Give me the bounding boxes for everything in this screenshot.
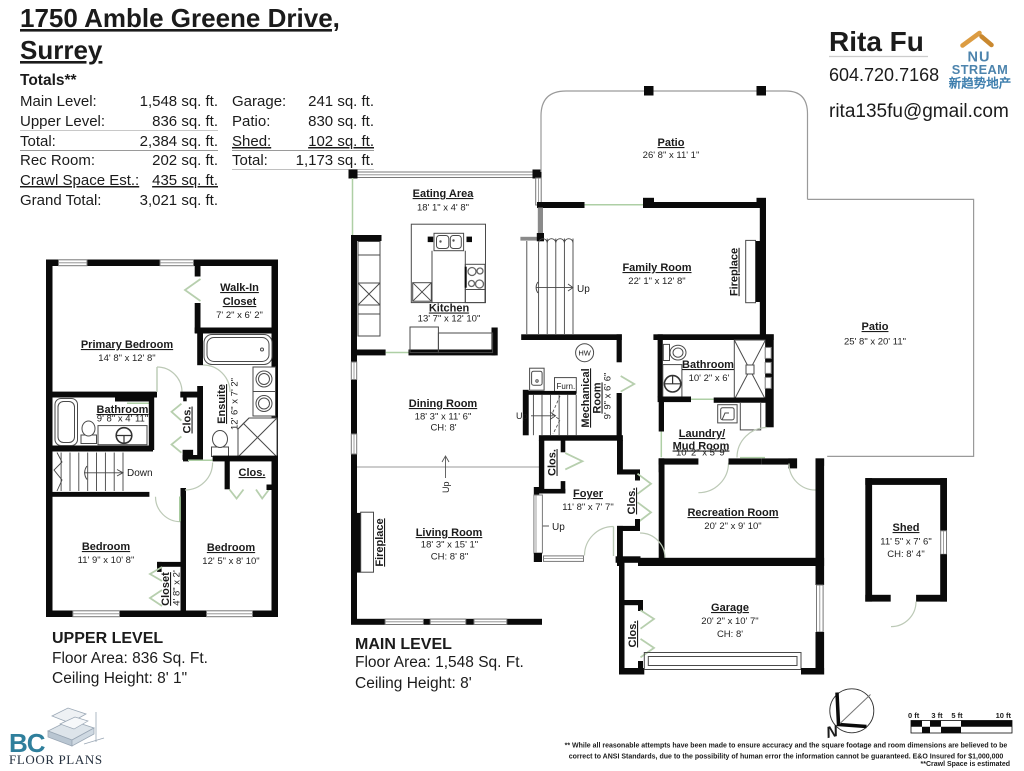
svg-text:Eating Area: Eating Area — [413, 188, 475, 200]
svg-text:Upper Level:: Upper Level: — [20, 113, 105, 130]
svg-text:correct to ANSI Standards, due: correct to ANSI Standards, due to the po… — [569, 754, 1004, 761]
svg-text:9' 9" x 6' 6": 9' 9" x 6' 6" — [603, 373, 614, 420]
svg-text:13' 7" x 12' 10": 13' 7" x 12' 10" — [418, 314, 481, 325]
svg-text:4' 8" x 2': 4' 8" x 2' — [172, 570, 183, 606]
svg-text:20' 2" x 10' 7": 20' 2" x 10' 7" — [701, 616, 758, 627]
svg-text:1,173 sq. ft.: 1,173 sq. ft. — [296, 152, 374, 169]
svg-text:3 ft: 3 ft — [931, 711, 943, 720]
svg-text:Patio:: Patio: — [232, 113, 270, 130]
svg-text:3,021 sq. ft.: 3,021 sq. ft. — [140, 192, 218, 209]
svg-text:Garage:: Garage: — [232, 93, 286, 110]
svg-text:18' 3" x 15' 1": 18' 3" x 15' 1" — [421, 540, 478, 551]
svg-text:25' 8" x 20' 11": 25' 8" x 20' 11" — [844, 337, 906, 348]
svg-text:Fireplace: Fireplace — [729, 248, 741, 296]
svg-text:Up: Up — [516, 411, 528, 421]
svg-text:Clos.: Clos. — [547, 449, 559, 476]
svg-text:Crawl Space Est.:: Crawl Space Est.: — [20, 172, 139, 189]
svg-text:CH: 8': CH: 8' — [430, 423, 456, 434]
svg-text:Walk-In: Walk-In — [220, 282, 259, 294]
svg-text:Patio: Patio — [862, 321, 889, 333]
svg-text:Totals**: Totals** — [20, 72, 78, 89]
svg-text:Dining Room: Dining Room — [409, 398, 478, 410]
svg-text:Patio: Patio — [658, 137, 685, 149]
svg-text:Fireplace: Fireplace — [374, 518, 386, 566]
svg-text:Main Level:: Main Level: — [20, 93, 97, 110]
svg-text:**Crawl Space is estimated: **Crawl Space is estimated — [921, 761, 1011, 768]
svg-text:0 ft: 0 ft — [908, 711, 920, 720]
svg-text:20' 2" x 9' 10": 20' 2" x 9' 10" — [704, 521, 761, 532]
svg-text:Mechanical: Mechanical — [580, 368, 592, 427]
svg-text:14' 8" x 12' 8": 14' 8" x 12' 8" — [98, 353, 155, 364]
svg-text:Bathroom: Bathroom — [682, 359, 734, 371]
svg-text:22' 1" x 12' 8": 22' 1" x 12' 8" — [628, 276, 685, 287]
svg-text:HW: HW — [578, 349, 591, 358]
svg-text:rita135fu@gmail.com: rita135fu@gmail.com — [829, 101, 1009, 122]
svg-text:Rec Room:: Rec Room: — [20, 152, 95, 169]
svg-text:Floor Area: 1,548 Sq. Ft.: Floor Area: 1,548 Sq. Ft. — [355, 654, 524, 671]
svg-text:Clos.: Clos. — [626, 488, 638, 515]
svg-text:Living Room: Living Room — [416, 527, 483, 539]
svg-text:Up: Up — [552, 522, 565, 533]
svg-text:11' 5" x 7' 6": 11' 5" x 7' 6" — [880, 537, 931, 548]
svg-text:12' 6" x 7' 2": 12' 6" x 7' 2" — [230, 378, 241, 430]
svg-text:STREAM: STREAM — [952, 62, 1008, 77]
svg-text:Clos.: Clos. — [239, 467, 266, 479]
svg-text:Total:: Total: — [20, 133, 56, 150]
svg-text:CH: 8': CH: 8' — [717, 629, 743, 640]
svg-text:10' 2" x 6': 10' 2" x 6' — [689, 373, 730, 384]
svg-text:Family Room: Family Room — [622, 262, 691, 274]
svg-text:Primary Bedroom: Primary Bedroom — [81, 339, 174, 351]
svg-text:9' 8" x 4' 11": 9' 8" x 4' 11" — [97, 414, 148, 425]
svg-text:Grand Total:: Grand Total: — [20, 192, 101, 209]
svg-text:102 sq. ft.: 102 sq. ft. — [308, 133, 374, 150]
svg-text:Closet: Closet — [160, 572, 172, 606]
svg-text:5 ft: 5 ft — [951, 711, 963, 720]
svg-text:Shed:: Shed: — [232, 133, 271, 150]
svg-text:Up: Up — [577, 284, 590, 295]
svg-text:Bedroom: Bedroom — [82, 541, 131, 553]
svg-text:Recreation Room: Recreation Room — [687, 507, 778, 519]
svg-text:Furn.: Furn. — [557, 382, 576, 391]
svg-text:12' 5" x 8' 10": 12' 5" x 8' 10" — [202, 556, 259, 567]
svg-text:1,548 sq. ft.: 1,548 sq. ft. — [140, 93, 218, 110]
svg-text:11' 9" x 10' 8": 11' 9" x 10' 8" — [78, 555, 135, 566]
svg-text:830 sq. ft.: 830 sq. ft. — [308, 113, 374, 130]
svg-text:Rita Fu: Rita Fu — [829, 26, 924, 57]
svg-text:Laundry/: Laundry/ — [679, 428, 725, 440]
svg-text:Bedroom: Bedroom — [207, 542, 256, 554]
svg-text:241 sq. ft.: 241 sq. ft. — [308, 93, 374, 110]
svg-text:Total:: Total: — [232, 152, 268, 169]
svg-text:Shed: Shed — [893, 522, 920, 534]
svg-text:7' 2" x 6' 2": 7' 2" x 6' 2" — [216, 310, 263, 321]
svg-text:FLOOR PLANS: FLOOR PLANS — [9, 752, 103, 767]
svg-text:CH: 8' 4": CH: 8' 4" — [887, 549, 924, 560]
svg-text:CH: 8' 8": CH: 8' 8" — [431, 552, 468, 563]
svg-text:MAIN LEVEL: MAIN LEVEL — [355, 636, 452, 653]
svg-text:Foyer: Foyer — [573, 488, 604, 500]
svg-text:1750 Amble Greene Drive,: 1750 Amble Greene Drive, — [20, 3, 340, 33]
svg-text:10 ft: 10 ft — [996, 711, 1012, 720]
svg-text:Surrey: Surrey — [20, 35, 103, 65]
svg-text:新趋势地产: 新趋势地产 — [949, 76, 1012, 91]
svg-text:11' 8" x 7' 7": 11' 8" x 7' 7" — [562, 502, 613, 513]
svg-text:Up: Up — [441, 481, 451, 493]
svg-text:10' 2" x 5' 9": 10' 2" x 5' 9" — [676, 448, 728, 459]
svg-text:Clos.: Clos. — [627, 621, 639, 648]
svg-text:26' 8" x 11' 1": 26' 8" x 11' 1" — [643, 150, 700, 161]
svg-text:Garage: Garage — [711, 602, 749, 614]
svg-text:2,384 sq. ft.: 2,384 sq. ft. — [140, 133, 218, 150]
svg-text:UPPER LEVEL: UPPER LEVEL — [52, 630, 163, 647]
svg-text:202 sq. ft.: 202 sq. ft. — [152, 152, 218, 169]
svg-text:Ensuite: Ensuite — [216, 384, 228, 424]
svg-text:Closet: Closet — [223, 296, 257, 308]
svg-text:Floor Area: 836 Sq. Ft.: Floor Area: 836 Sq. Ft. — [52, 650, 208, 667]
svg-text:18' 1" x 4' 8": 18' 1" x 4' 8" — [417, 203, 469, 214]
svg-text:Ceiling Height: 8' 1": Ceiling Height: 8' 1" — [52, 670, 187, 687]
svg-text:435 sq. ft.: 435 sq. ft. — [152, 172, 218, 189]
svg-text:836 sq. ft.: 836 sq. ft. — [152, 113, 218, 130]
svg-text:Down: Down — [127, 468, 153, 479]
svg-text:Clos.: Clos. — [182, 407, 194, 434]
svg-text:Ceiling Height: 8': Ceiling Height: 8' — [355, 675, 472, 692]
svg-text:18' 3" x 11' 6": 18' 3" x 11' 6" — [415, 412, 472, 423]
svg-text:** While all reasonable attemp: ** While all reasonable attempts have be… — [565, 743, 1008, 750]
svg-text:604.720.7168: 604.720.7168 — [829, 65, 939, 85]
